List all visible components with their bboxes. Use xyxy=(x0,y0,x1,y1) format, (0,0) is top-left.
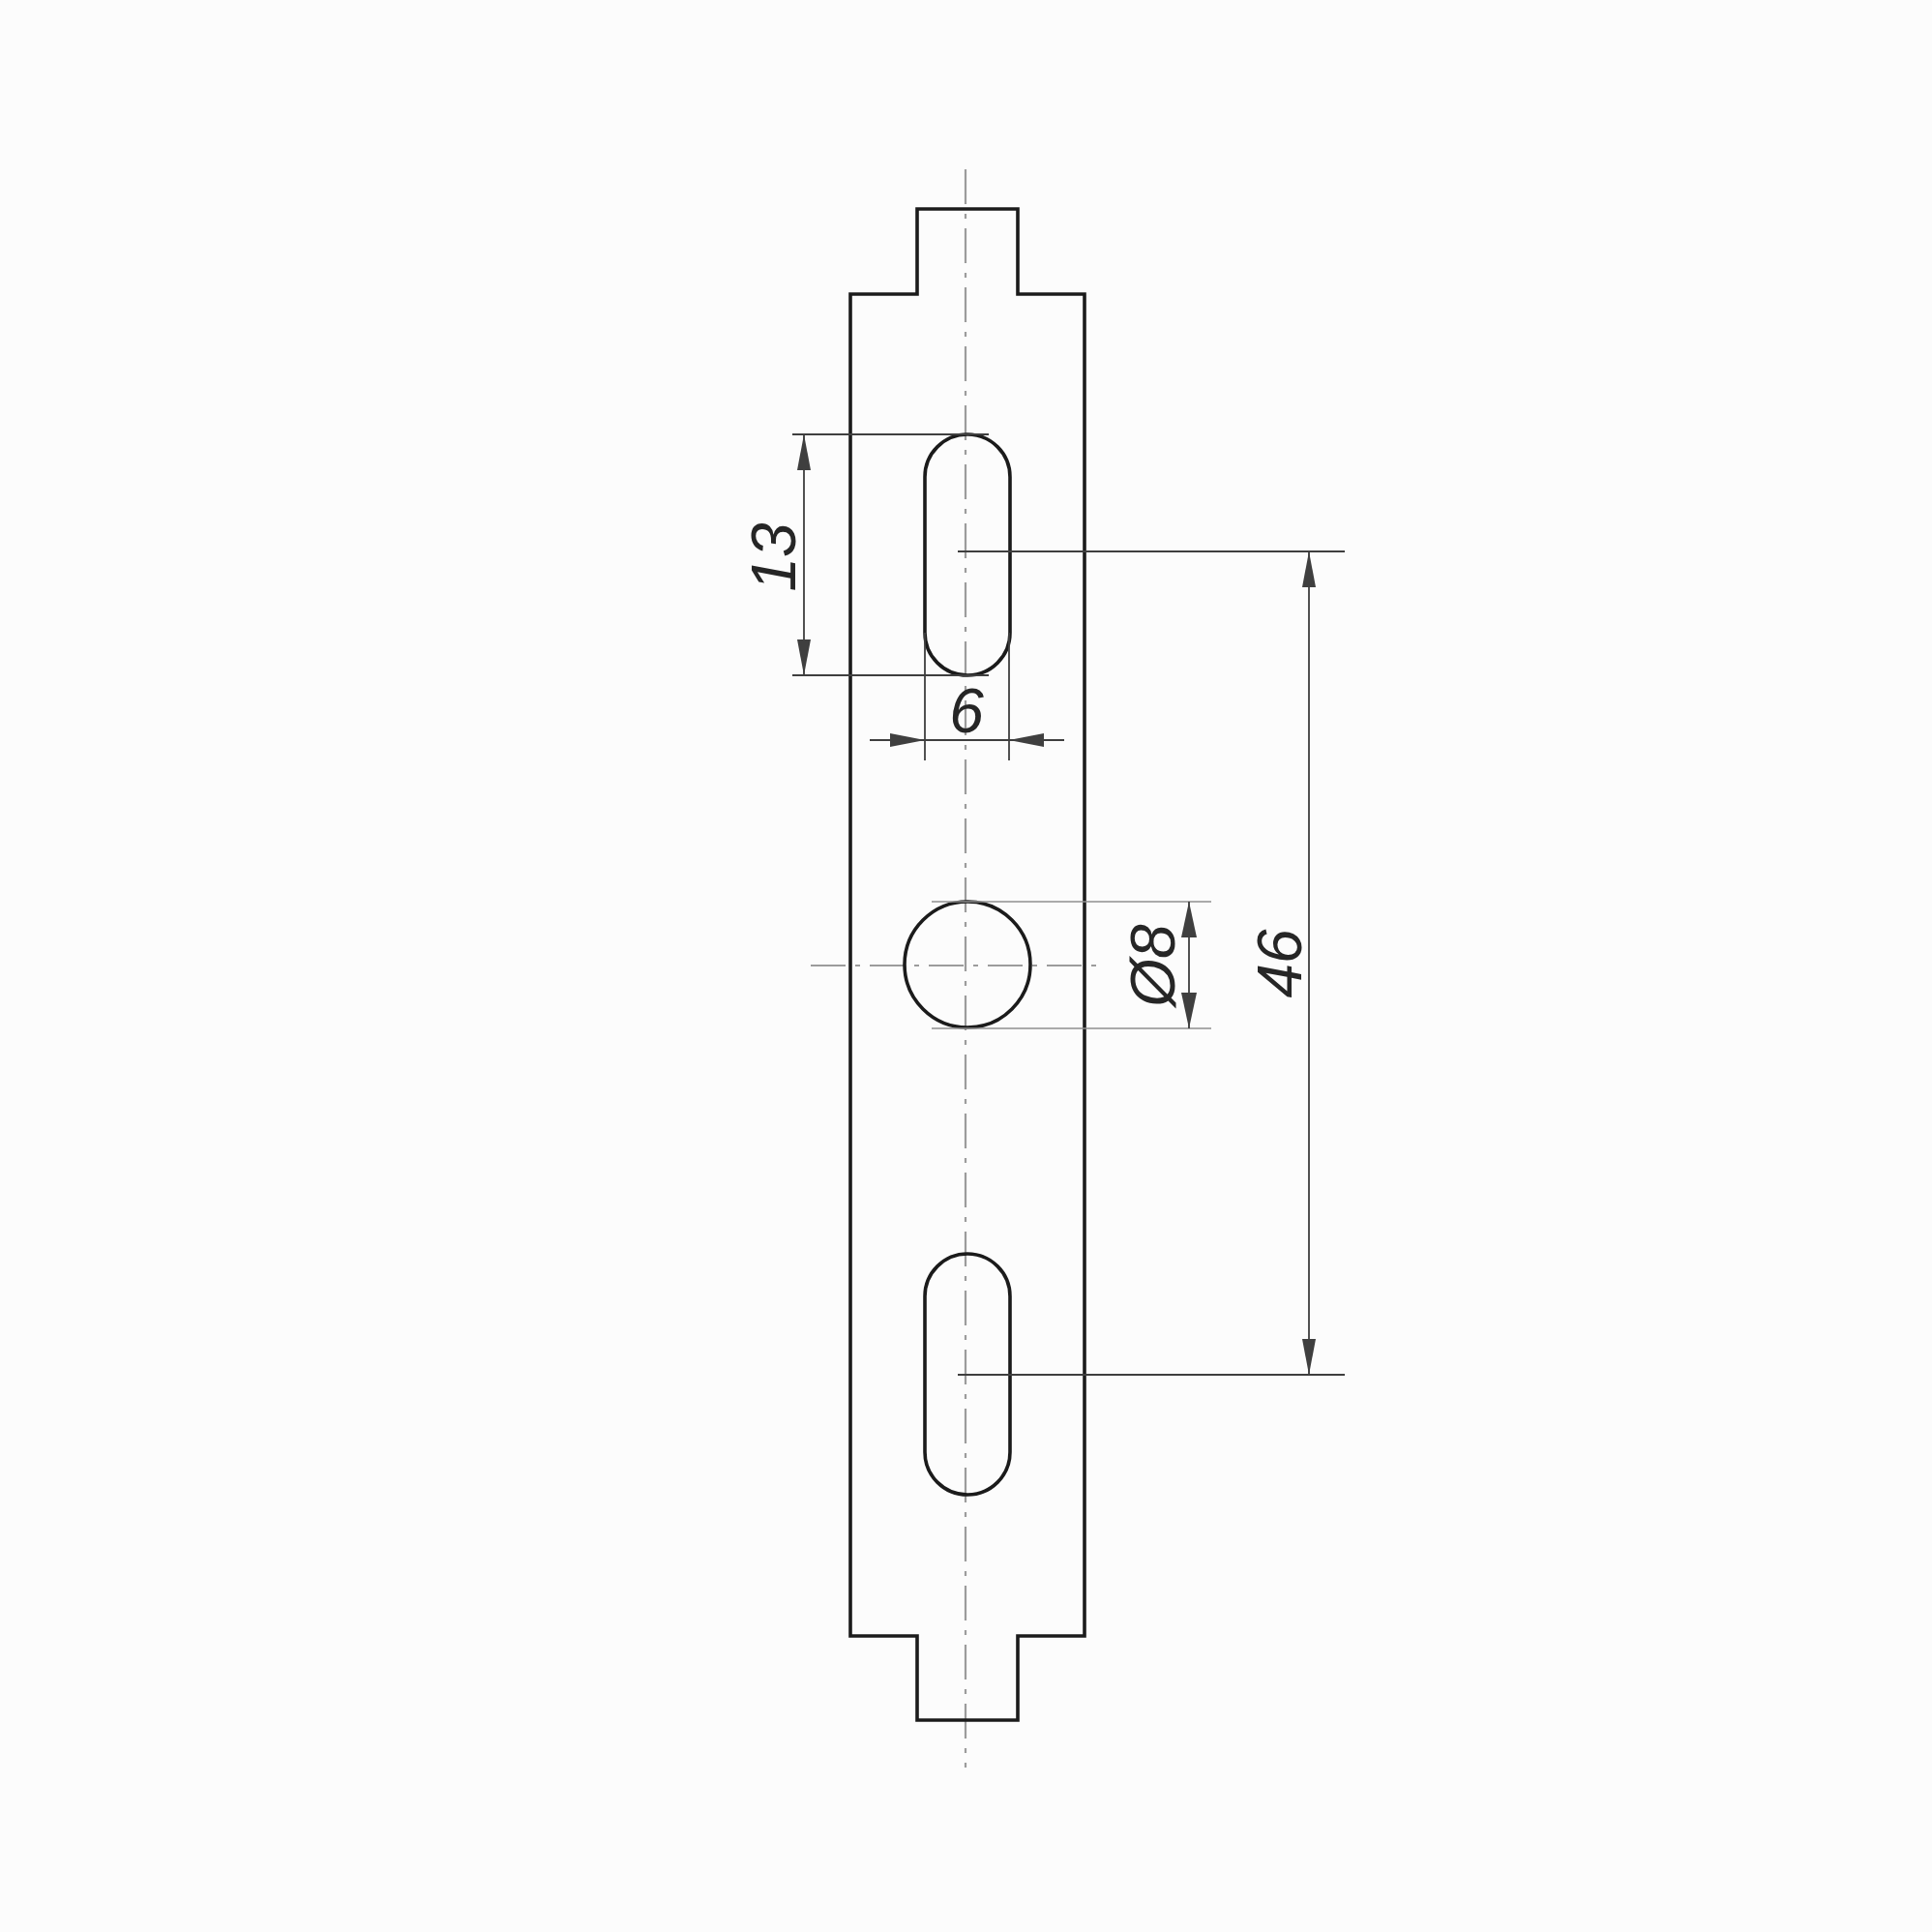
technical-drawing: 13 6 Ø8 46 xyxy=(0,0,1932,1932)
dimension-label: 13 xyxy=(739,522,809,592)
dimension-label: 6 xyxy=(949,676,984,746)
dimension-label: Ø8 xyxy=(1118,924,1188,1009)
dimension-label: 46 xyxy=(1245,929,1315,998)
